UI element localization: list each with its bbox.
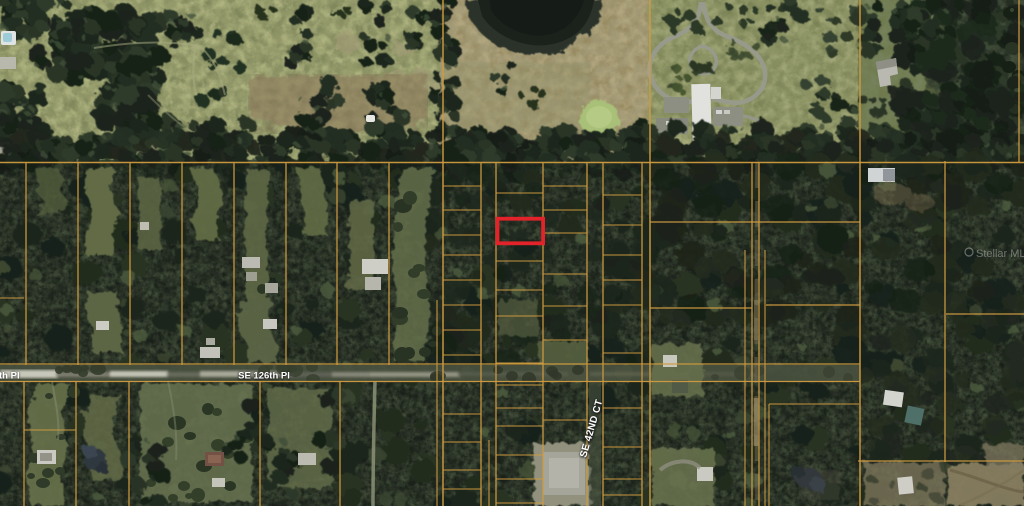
svg-text:th Pl: th Pl [0, 371, 20, 382]
svg-text:SE 126th Pl: SE 126th Pl [238, 371, 290, 382]
svg-text:Stellar MLS: Stellar MLS [976, 248, 1024, 260]
